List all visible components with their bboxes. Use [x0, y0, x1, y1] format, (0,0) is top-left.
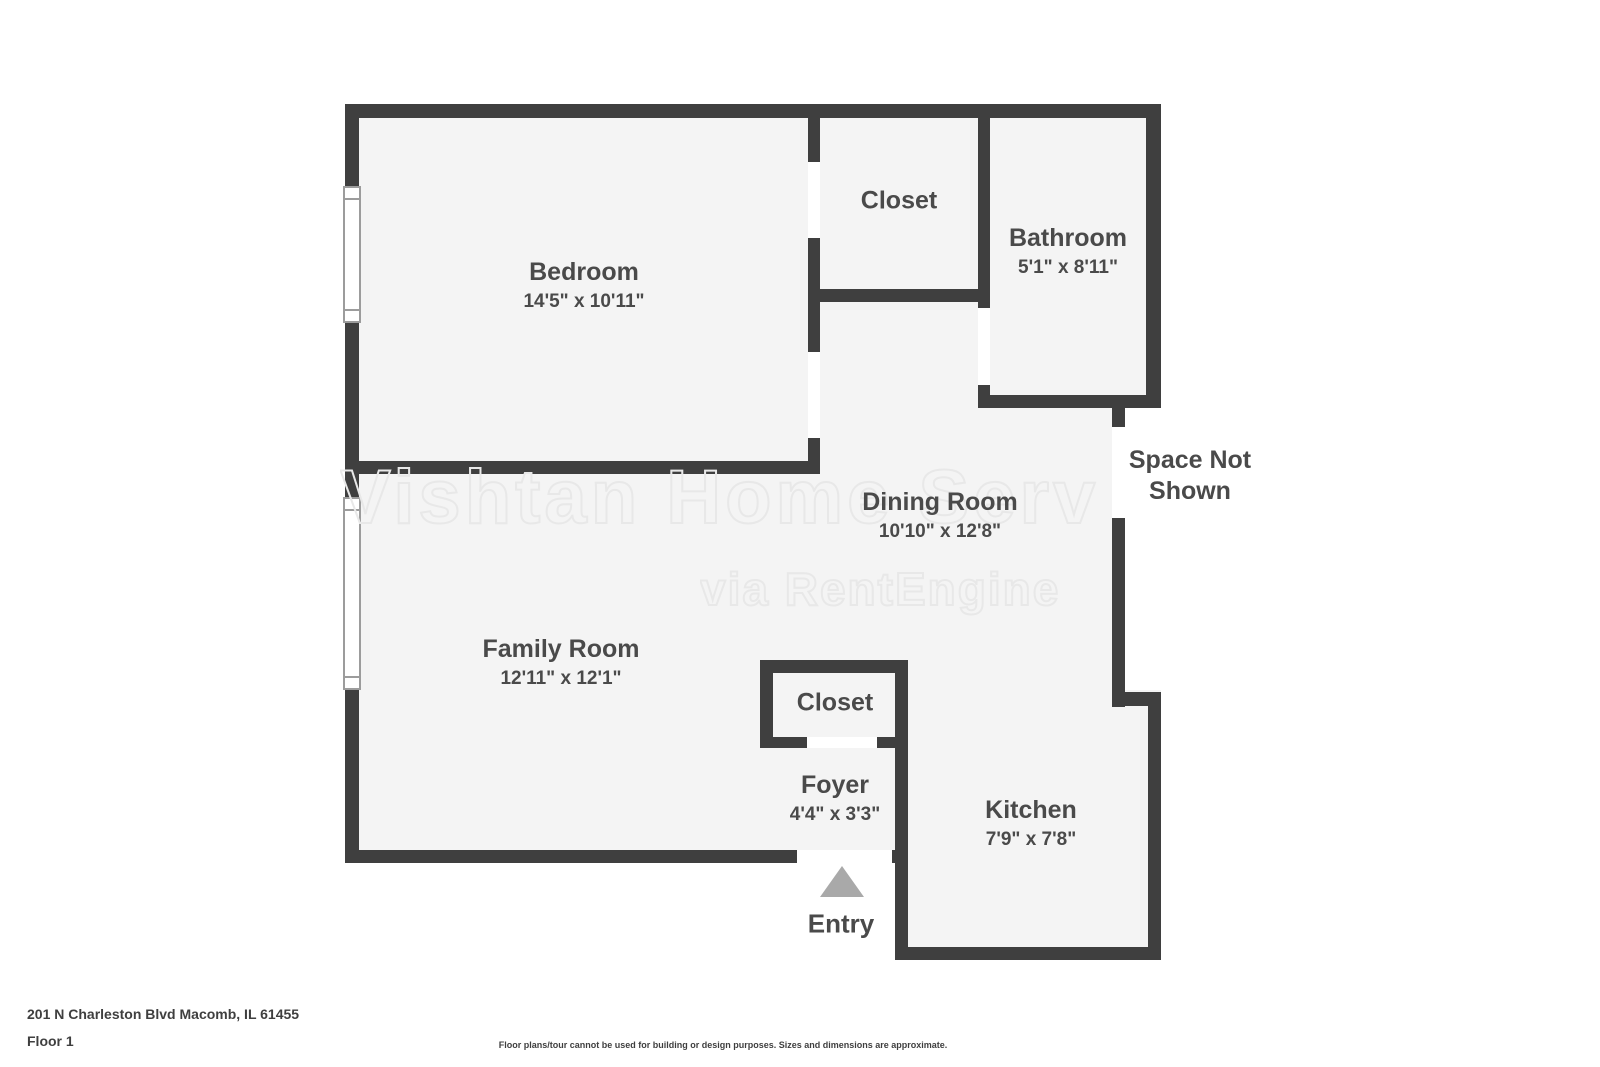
wall-upper-closet-bottom: [808, 289, 990, 302]
door-bedroom-lower: [808, 352, 820, 438]
room-dims: 12'11" x 12'1": [483, 665, 640, 692]
annotation-space-not-shown: Space Not Shown: [1129, 445, 1251, 507]
door-bathroom: [978, 308, 990, 385]
room-name: Family Room: [483, 634, 640, 665]
entry-label: Entry: [808, 909, 874, 940]
room-label-lower-closet: Closet: [797, 688, 873, 719]
address-text: 201 N Charleston Blvd Macomb, IL 61455: [27, 1006, 299, 1022]
floor-plan-page: Vishtan Home Serv via RentEngine Bedroom…: [0, 0, 1600, 1067]
window-bedroom: [343, 186, 361, 323]
room-label-bedroom: Bedroom 14'5" x 10'11": [523, 257, 644, 315]
space-not-shown-line1: Space Not: [1129, 445, 1251, 476]
window-frame-line: [344, 198, 360, 200]
room-dims: 14'5" x 10'11": [523, 288, 644, 315]
room-dims: 10'10" x 12'8": [862, 518, 1018, 545]
door-bedroom-upper: [808, 162, 820, 238]
wall-bathroom-right-exterior: [1146, 104, 1161, 408]
room-dims: 7'9" x 7'8": [985, 826, 1077, 853]
room-label-family-room: Family Room 12'11" x 12'1": [483, 634, 640, 692]
window-family-room: [343, 497, 361, 690]
room-label-foyer: Foyer 4'4" x 3'3": [790, 770, 880, 828]
room-name: Bedroom: [523, 257, 644, 288]
disclaimer-text: Floor plans/tour cannot be used for buil…: [499, 1040, 948, 1050]
floor-fill-middle: [345, 408, 1125, 690]
room-name: Bathroom: [1009, 223, 1127, 254]
wall-lower-closet-left: [760, 660, 773, 748]
room-name: Dining Room: [862, 487, 1018, 518]
room-label-upper-closet: Closet: [861, 186, 937, 217]
room-name: Closet: [861, 186, 937, 217]
door-lower-closet: [807, 737, 877, 748]
room-dims: 5'1" x 8'11": [1009, 254, 1127, 281]
room-label-bathroom: Bathroom 5'1" x 8'11": [1009, 223, 1127, 281]
window-frame-line: [344, 676, 360, 678]
room-label-kitchen: Kitchen 7'9" x 7'8": [985, 795, 1077, 853]
door-space-not-shown: [1112, 427, 1125, 518]
wall-foyer-right: [895, 660, 908, 960]
room-label-dining-room: Dining Room 10'10" x 12'8": [862, 487, 1018, 545]
space-not-shown-line2: Shown: [1129, 476, 1251, 507]
wall-bathroom-bottom: [978, 395, 1161, 408]
room-name: Kitchen: [985, 795, 1077, 826]
opening-entry: [797, 850, 892, 863]
wall-lower-closet-top: [760, 660, 908, 673]
window-frame-line: [344, 509, 360, 511]
window-frame-line: [344, 309, 360, 311]
wall-kitchen-bottom-exterior: [895, 947, 1161, 960]
wall-bedroom-bottom: [345, 461, 820, 474]
wall-kitchen-right-exterior: [1148, 692, 1161, 960]
room-name: Foyer: [790, 770, 880, 801]
wall-top-exterior: [345, 104, 1161, 118]
room-name: Closet: [797, 688, 873, 719]
floor-number-text: Floor 1: [27, 1033, 74, 1049]
entry-arrow-icon: [820, 866, 864, 897]
room-dims: 4'4" x 3'3": [790, 801, 880, 828]
